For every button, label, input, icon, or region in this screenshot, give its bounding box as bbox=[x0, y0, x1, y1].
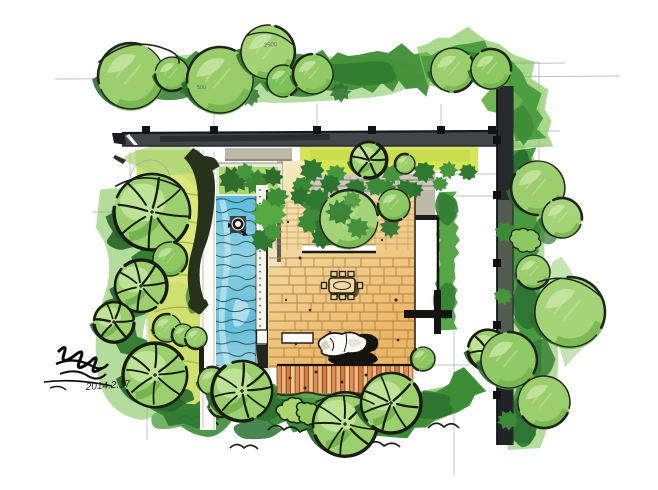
svg-text:2500: 2500 bbox=[264, 42, 278, 49]
svg-text:500: 500 bbox=[197, 85, 206, 91]
